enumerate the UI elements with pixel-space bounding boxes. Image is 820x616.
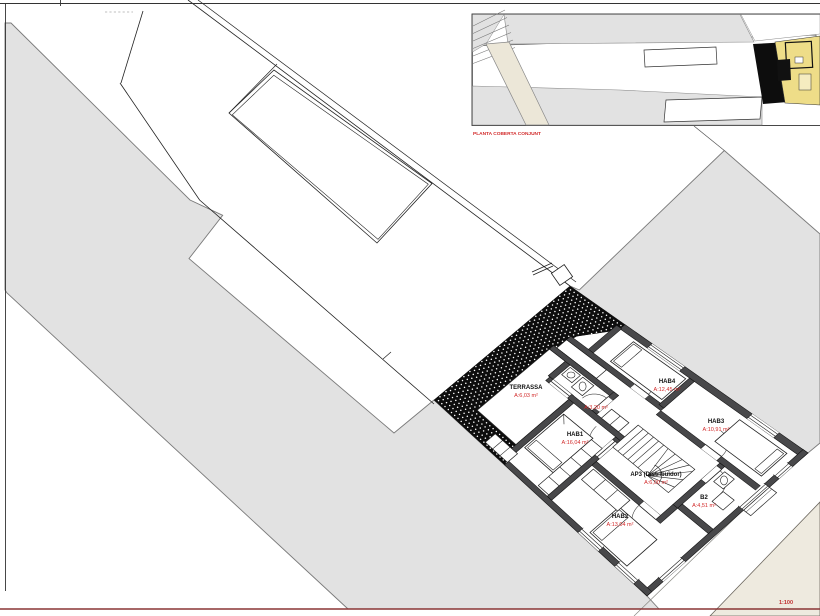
svg-text:1:100: 1:100: [779, 600, 793, 606]
svg-text:A:16,04 m²: A:16,04 m²: [562, 440, 589, 446]
svg-text:HAB4: HAB4: [659, 379, 676, 385]
svg-text:A:12,45 m²: A:12,45 m²: [654, 387, 681, 393]
svg-text:AP3 (Distribuïdor): AP3 (Distribuïdor): [630, 472, 681, 478]
svg-text:B2: B2: [700, 495, 708, 501]
svg-text:PLANTA COBERTA CONJUNT: PLANTA COBERTA CONJUNT: [473, 131, 541, 137]
svg-text:TERRASSA: TERRASSA: [509, 385, 543, 391]
svg-text:HAB1: HAB1: [567, 432, 584, 438]
svg-text:A:13,04 m²: A:13,04 m²: [607, 522, 634, 528]
svg-text:A:4,51 m²: A:4,51 m²: [692, 503, 716, 509]
svg-text:HAB2: HAB2: [612, 514, 629, 520]
svg-text:A:6,00 m²: A:6,00 m²: [644, 480, 668, 486]
svg-text:A:10,91 m²: A:10,91 m²: [703, 427, 730, 433]
svg-text:A:6,03 m²: A:6,03 m²: [514, 393, 538, 399]
svg-text:HAB3: HAB3: [708, 419, 725, 425]
svg-text:A:3,20 m²: A:3,20 m²: [584, 405, 608, 411]
